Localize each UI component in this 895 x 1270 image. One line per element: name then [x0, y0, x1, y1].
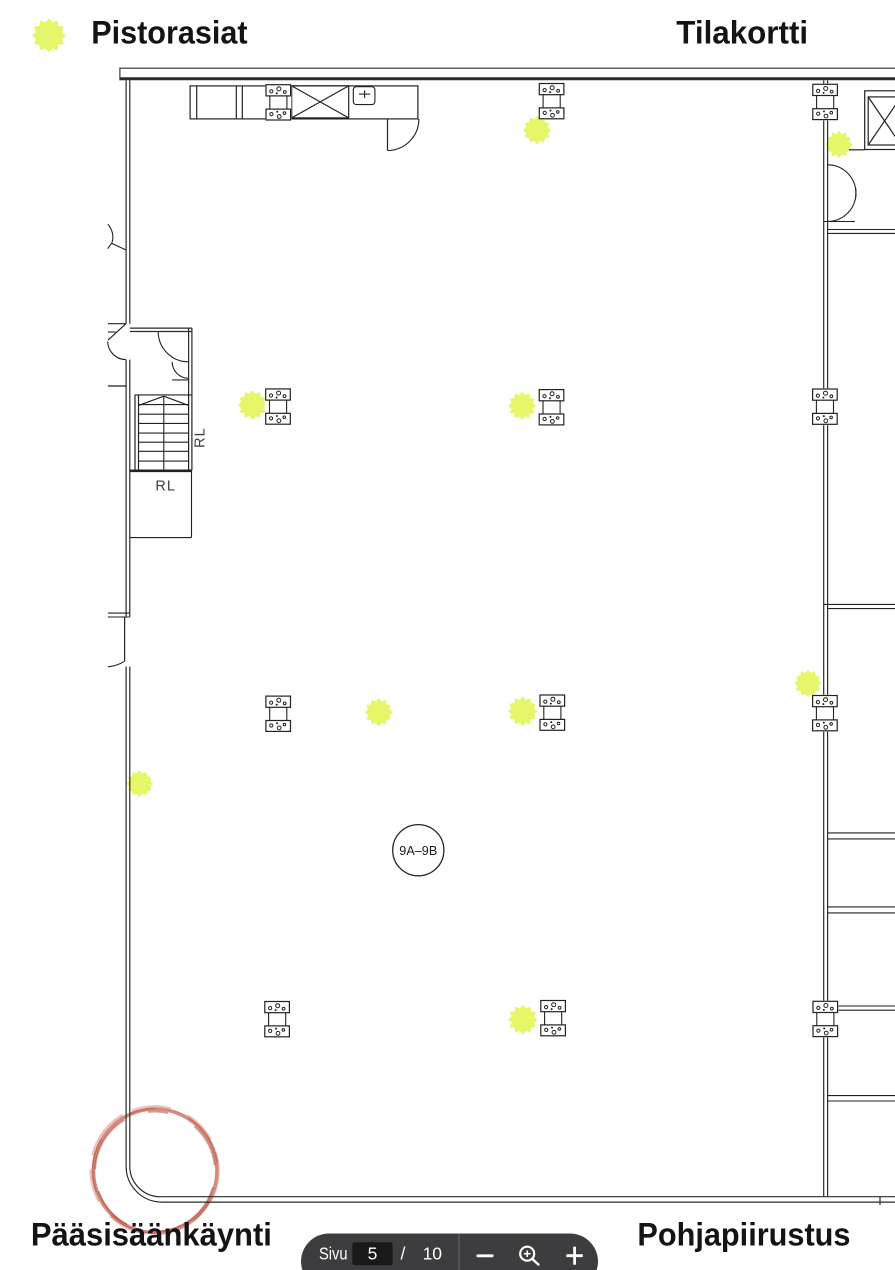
- svg-text:Sivu: Sivu: [319, 1244, 348, 1264]
- svg-text:Tilakortti: Tilakortti: [676, 15, 808, 51]
- svg-text:Pistorasiat: Pistorasiat: [91, 15, 248, 51]
- svg-text:/: /: [401, 1244, 406, 1264]
- svg-text:5: 5: [368, 1244, 378, 1264]
- svg-text:10: 10: [423, 1244, 443, 1264]
- svg-text:Pohjapiirustus: Pohjapiirustus: [637, 1217, 850, 1253]
- svg-text:Pääsisäänkäynti: Pääsisäänkäynti: [31, 1217, 272, 1253]
- svg-text:RL: RL: [155, 478, 176, 494]
- svg-text:RL: RL: [193, 427, 209, 448]
- svg-text:9A–9B: 9A–9B: [399, 843, 437, 858]
